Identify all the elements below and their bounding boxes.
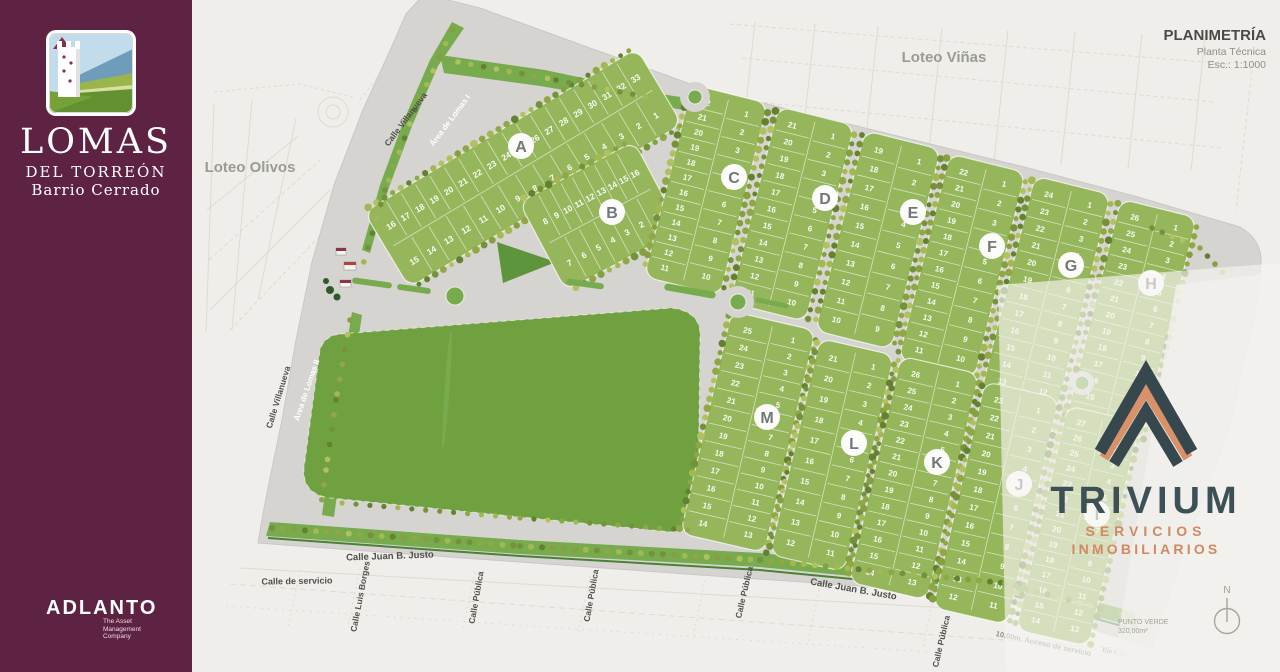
svg-text:320,00m²: 320,00m² xyxy=(1118,628,1148,635)
adlanto-tagline: The Asset Management Company xyxy=(103,618,141,641)
svg-text:G: G xyxy=(1065,258,1077,275)
punto-verde-label: PUNTO VERDE xyxy=(1118,619,1169,626)
context-label-loteo-olivos: Loteo Olivos xyxy=(205,159,296,176)
plan-scale: Esc.: 1:1000 xyxy=(1208,59,1267,71)
brand-subtitle: DEL TORREÓN xyxy=(0,163,192,181)
brand-title: LOMAS xyxy=(0,122,192,162)
svg-text:E: E xyxy=(908,205,919,222)
site-plan-map: 1234567891011121314153332313029282726252… xyxy=(0,0,1280,672)
svg-text:F: F xyxy=(987,239,997,256)
street-label-calle-servicio: Calle de servicio xyxy=(261,575,333,586)
svg-text:B: B xyxy=(606,205,618,222)
plan-title: PLANIMETRÍA xyxy=(1164,27,1267,44)
tower-hills-icon xyxy=(49,33,133,113)
lomas-logo-card xyxy=(46,30,136,116)
svg-text:M: M xyxy=(760,410,773,427)
svg-text:L: L xyxy=(849,436,859,453)
svg-text:C: C xyxy=(728,170,740,187)
svg-text:D: D xyxy=(819,191,831,208)
trivium-line2: INMOBILIARIOS xyxy=(1072,541,1221,557)
brand-tagline: Barrio Cerrado xyxy=(0,181,192,199)
north-label: N xyxy=(1223,585,1230,596)
trivium-line1: SERVICIOS xyxy=(1086,523,1207,539)
adlanto-logo: ADLANTO xyxy=(46,597,157,620)
central-park xyxy=(304,308,700,532)
svg-text:K: K xyxy=(931,455,943,472)
plan-subtitle: Planta Técnica xyxy=(1197,46,1266,58)
planimetria-poster: 1234567891011121314153332313029282726252… xyxy=(0,0,1280,672)
context-label-loteo-vinas: Loteo Viñas xyxy=(902,49,987,66)
svg-text:A: A xyxy=(515,139,527,156)
brand-sidebar: LOMAS DEL TORREÓN Barrio Cerrado ADLANTO… xyxy=(0,0,192,672)
trivium-wordmark: TRIVIUM xyxy=(1050,480,1241,522)
